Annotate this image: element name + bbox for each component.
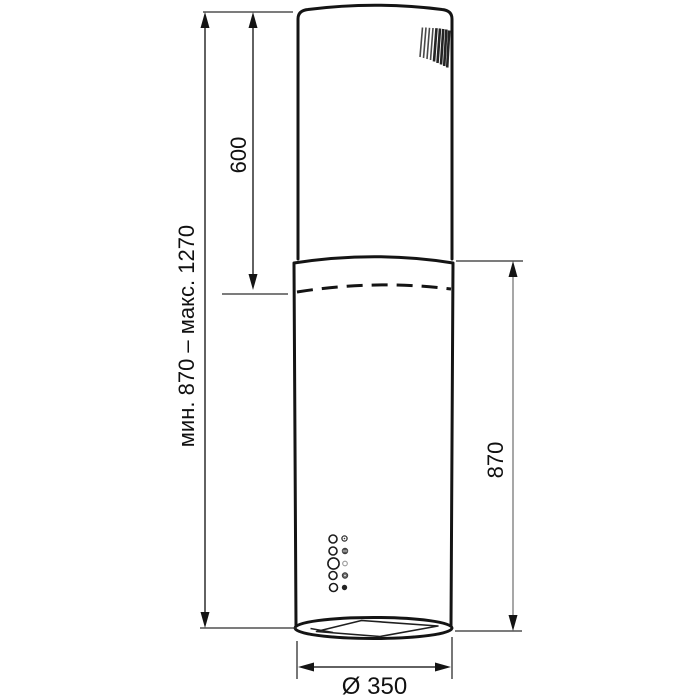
arrow-up-icon [201,12,210,28]
arrow-left-icon [298,663,314,672]
hood-outline [294,5,453,638]
dim-diameter: Ø 350 [297,637,452,700]
dim-upper-section: 600 [222,12,288,294]
indicator-icon-5 [342,585,347,590]
range-hood-dimension-drawing: мин. 870 – макс. 1270 600 870 Ø 350 [0,0,700,700]
dim-height-range: мин. 870 – макс. 1270 [174,12,296,628]
dim-lower-label: 870 [483,442,508,479]
dim-diameter-label: Ø 350 [342,673,407,700]
arrow-up-icon [249,12,258,28]
indicator-icon-2 [342,548,348,554]
arrow-right-icon [435,663,451,672]
control-button-3[interactable] [328,558,339,569]
dimension-diagram-page: мин. 870 – макс. 1270 600 870 Ø 350 [0,0,700,700]
control-button-4[interactable] [329,572,337,580]
hood-body [294,257,453,626]
arrow-down-icon [249,274,258,290]
vent-grille-icon [420,28,449,68]
indicator-icon-4 [342,573,348,579]
control-button-5[interactable] [330,584,338,592]
control-panel [328,535,348,592]
dim-height-range-label: мин. 870 – макс. 1270 [174,225,199,447]
dim-upper-label: 600 [226,137,251,174]
arrow-down-icon [201,612,210,628]
arrow-down-icon [509,615,518,631]
seam-dashed-line [297,285,451,292]
control-button-2[interactable] [329,547,337,555]
indicator-icon-3 [343,561,348,566]
indicator-icon-1 [342,536,347,541]
dim-lower-section: 870 [455,261,523,631]
base-panel [317,621,439,637]
arrow-up-icon [509,261,518,277]
control-button-1[interactable] [329,535,337,543]
